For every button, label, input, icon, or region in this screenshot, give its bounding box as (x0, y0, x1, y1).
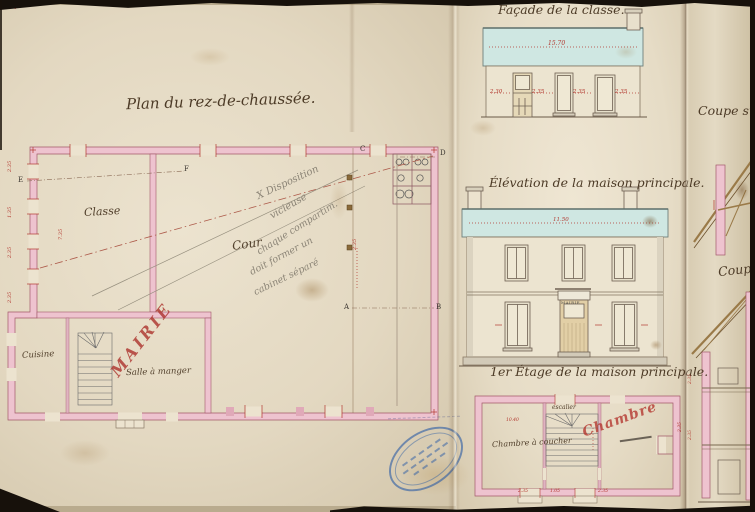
dim-mid-wall: 2.35 (352, 239, 358, 250)
ground-floor-plan-drawing (0, 128, 460, 433)
dim-facade-bay: 2.30 (490, 89, 502, 95)
dim-first-floor-width: 10.40 (506, 418, 519, 423)
scanned-architectural-drawing: Plan du rez-de-chaussée. Façade de la cl… (0, 0, 755, 512)
red-corner-cross: + (11, 1, 19, 12)
marker-e: E (18, 176, 23, 184)
dim-left-wall: 2.35 (7, 161, 13, 172)
marker-c: C (360, 145, 365, 153)
dim-facade-width: 15.70 (548, 40, 565, 47)
marker-d: D (440, 149, 446, 157)
section-drawings (688, 140, 755, 512)
plan-walls (8, 147, 438, 420)
title-first-floor: 1er Étage de la maison principale. (490, 364, 708, 379)
dim-classe-depth: 7.35 (58, 229, 64, 240)
window-openings (7, 144, 387, 428)
dim-facade-bay: 2.35 (573, 89, 585, 95)
roof-truss-section (694, 156, 755, 255)
facade-door (513, 73, 532, 117)
latrine-block (393, 154, 431, 204)
dim-elevation-width: 11.50 (553, 217, 569, 223)
room-label-escalier: escalier (552, 404, 576, 411)
marker-b: B (436, 303, 441, 311)
elevation-chimneys (466, 187, 639, 209)
dim-facade-bay: 2.35 (615, 89, 627, 95)
axis-and-pencil-lines (27, 147, 437, 415)
dim-first-floor-right: 2.35 (678, 422, 683, 432)
dim-section: 2.35 (688, 430, 693, 440)
title-elevation: Élévation de la maison principale. (489, 175, 705, 190)
dim-first-floor-bottom: 2.35 (518, 489, 528, 494)
title-facade: Façade de la classe. (498, 2, 625, 17)
door-plaque-mairie: MAIRIE (561, 300, 580, 305)
dim-first-floor-bottom: 2.35 (598, 489, 608, 494)
classe-facade-drawing (455, 0, 655, 130)
marker-a: A (344, 303, 349, 311)
elevation-upper-windows (505, 245, 635, 281)
room-label-classe: Classe (84, 204, 121, 219)
dim-facade-bay: 2.35 (532, 89, 544, 95)
main-house-elevation-drawing (455, 185, 680, 370)
dim-section: 2.35 (688, 374, 693, 384)
dim-left-wall: 2.35 (7, 292, 13, 303)
room-label-cuisine: Cuisine (22, 349, 55, 361)
house-cross-section (692, 290, 754, 502)
dim-left-wall: 1.35 (7, 207, 13, 218)
dim-left-wall: 2.35 (7, 247, 13, 258)
title-section-1: Coupe sui (698, 103, 755, 118)
elevation-roof (462, 209, 668, 237)
dim-first-floor-bottom: 1.05 (550, 489, 560, 494)
facade-roof (483, 9, 643, 66)
marker-f: F (184, 165, 189, 173)
